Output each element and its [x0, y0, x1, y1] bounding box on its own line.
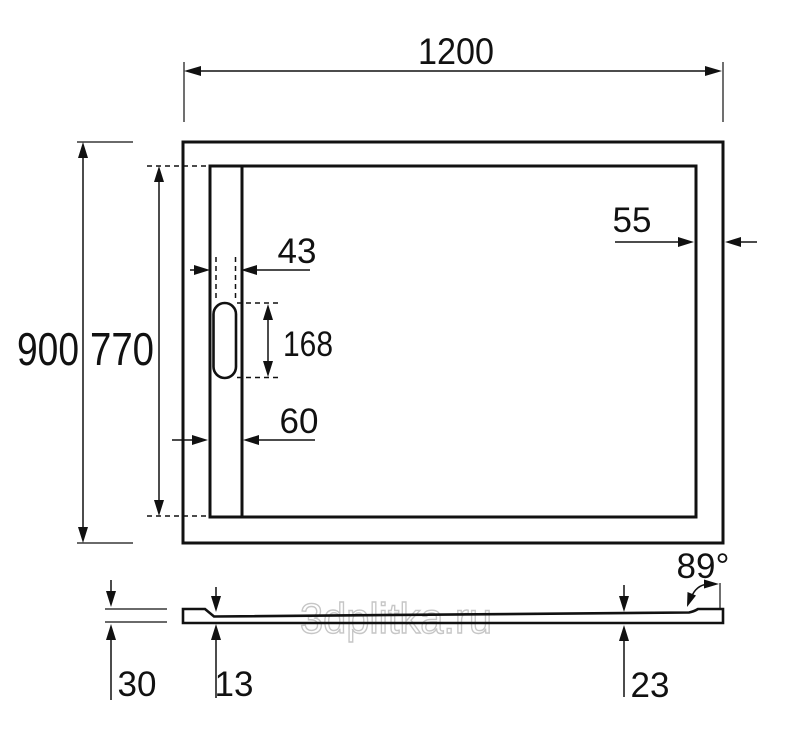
dim-channel-width-label: 60	[280, 402, 319, 441]
shower-tray-technical-drawing: 3dplitka.ru 1200 900	[0, 0, 800, 744]
dim-channel-width: 60	[172, 402, 318, 445]
dim-rim-width: 55	[613, 201, 757, 247]
dim-rim-thickness: 23	[619, 585, 669, 705]
arrowhead-up	[78, 142, 88, 158]
drawing-canvas: 3dplitka.ru 1200 900	[0, 0, 800, 744]
dim-rim-width-label: 55	[613, 201, 652, 240]
arrowhead-arc-start	[687, 592, 696, 607]
dim-drain-thickness: 13	[211, 587, 253, 704]
arrowhead-down	[154, 500, 164, 516]
dim-inner-depth-label: 770	[90, 323, 154, 375]
dim-edge-height-label: 30	[118, 665, 157, 704]
arrowhead-right	[678, 237, 694, 247]
arrowhead-right	[705, 66, 722, 76]
dim-side-angle-label: 89°	[677, 547, 730, 586]
arrowhead-up	[106, 624, 116, 640]
arrowhead-up	[263, 304, 273, 320]
arrowhead-left	[725, 237, 741, 247]
watermark-text: 3dplitka.ru	[300, 595, 492, 643]
arrowhead-down	[211, 596, 221, 612]
dim-drain-thickness-label: 13	[215, 665, 254, 704]
dim-overall-depth-label: 900	[17, 323, 79, 375]
arrowhead-up	[211, 624, 221, 640]
dim-side-angle: 89°	[677, 547, 730, 608]
arrowhead-left	[243, 435, 259, 445]
dim-slot-length-label: 168	[283, 325, 333, 364]
arrowhead-up	[154, 166, 164, 182]
drain-slot-outline	[214, 303, 237, 378]
arrowhead-down	[263, 361, 273, 377]
dim-overall-width-label: 1200	[418, 31, 494, 72]
dim-inner-depth: 770	[90, 166, 164, 516]
arrowhead-up	[619, 625, 629, 641]
arrowhead-down	[106, 591, 116, 607]
arrowhead-down	[619, 596, 629, 612]
arrowhead-left	[184, 66, 201, 76]
dim-slot-width-label: 43	[278, 232, 317, 271]
dim-overall-width: 1200	[184, 31, 723, 122]
dim-slot-length: 168	[263, 304, 333, 377]
plan-view: 1200 900 770 43	[17, 31, 757, 543]
dim-edge-height: 30	[105, 580, 167, 704]
arrowhead-down	[78, 527, 88, 543]
arrowhead-right	[192, 435, 208, 445]
arrowhead-right	[194, 265, 210, 275]
dim-rim-thickness-label: 23	[631, 666, 670, 705]
